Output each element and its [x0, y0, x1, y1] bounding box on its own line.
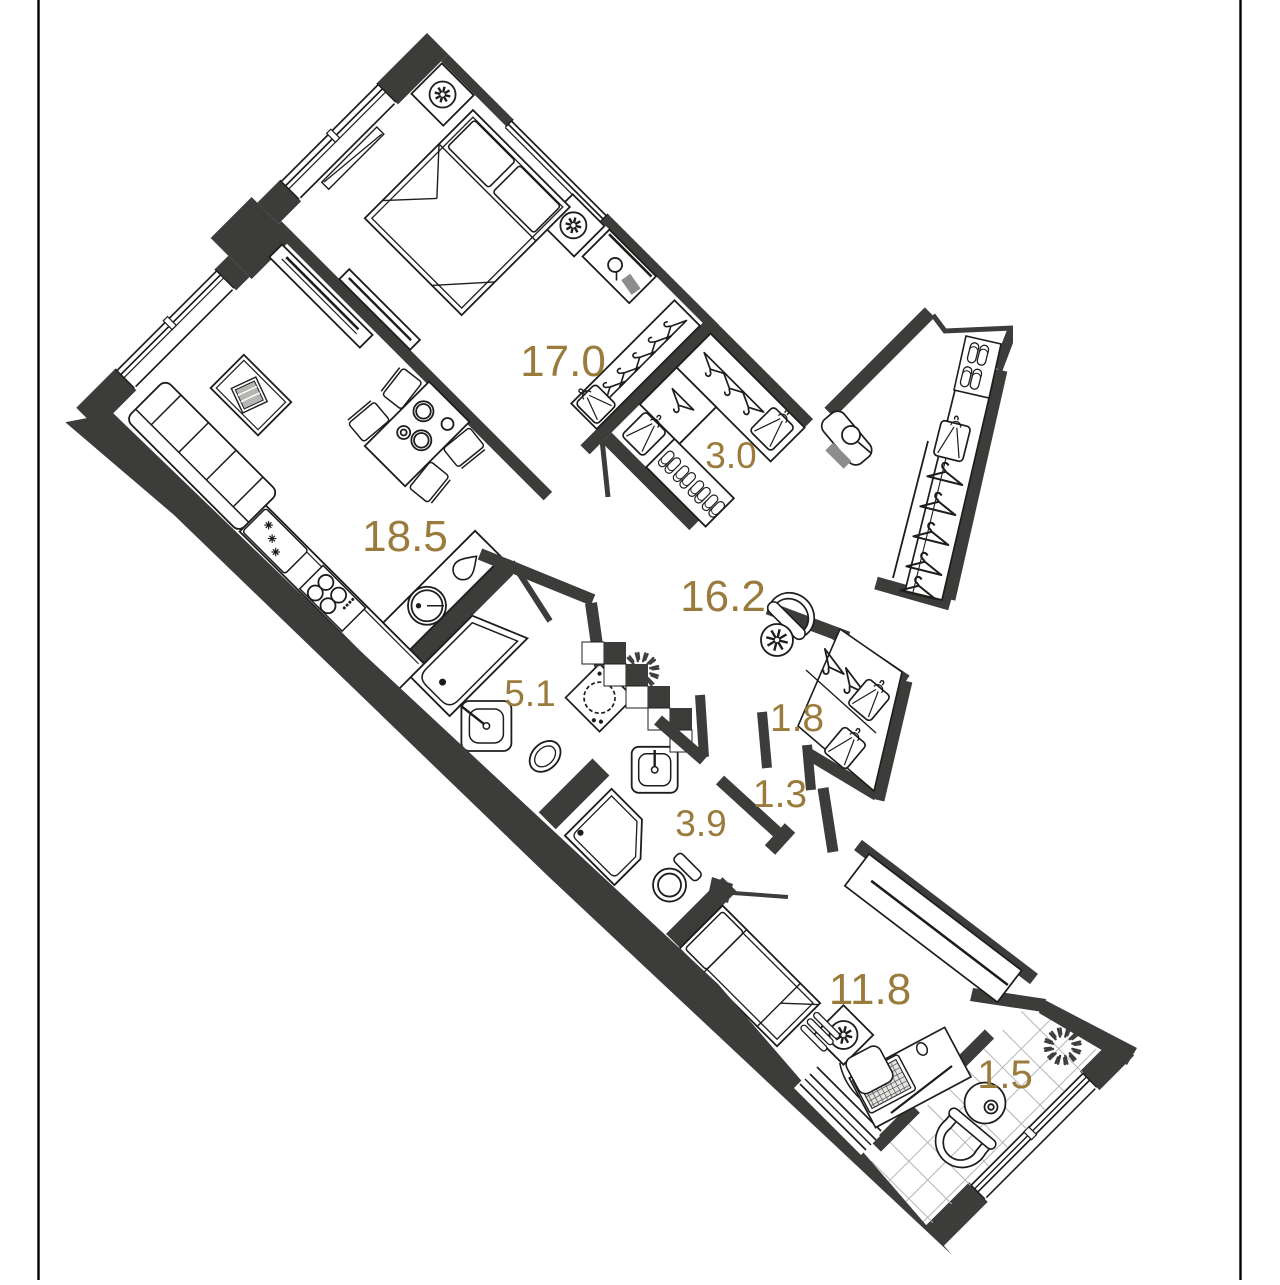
svg-text:1.8: 1.8: [770, 697, 824, 740]
svg-text:11.8: 11.8: [829, 965, 911, 1014]
svg-text:3.9: 3.9: [675, 803, 726, 844]
svg-text:1.3: 1.3: [753, 773, 807, 816]
svg-text:1.5: 1.5: [977, 1053, 1033, 1097]
svg-text:17.0: 17.0: [520, 337, 606, 386]
svg-text:3.0: 3.0: [705, 435, 756, 476]
svg-text:5.1: 5.1: [504, 673, 555, 714]
svg-text:18.5: 18.5: [362, 512, 448, 561]
svg-text:16.2: 16.2: [680, 572, 766, 621]
